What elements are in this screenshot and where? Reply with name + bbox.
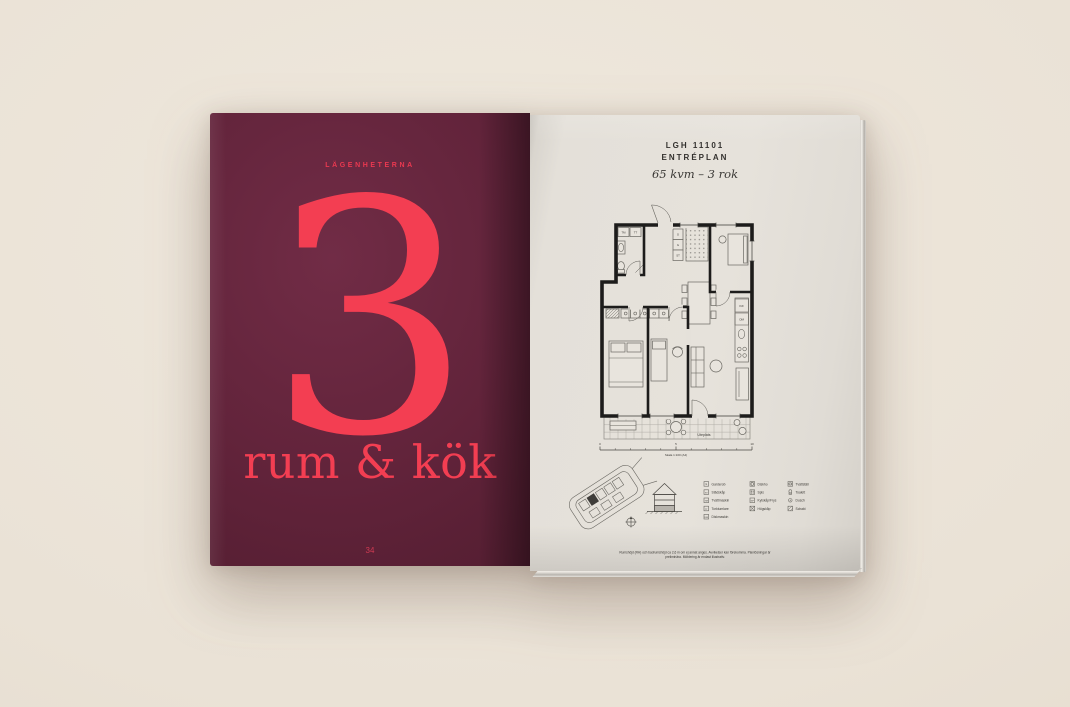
apartment-size: 65 kvm – 3 rok <box>530 167 860 181</box>
legend-item-label: Spis <box>758 491 765 495</box>
legend-toalett-icon <box>789 490 792 495</box>
legend-dusch-icon <box>789 499 793 503</box>
apartment-id: LGH 11101 <box>530 141 860 150</box>
room-count-subtitle: rum & kök <box>210 435 530 489</box>
legend-col2: Diskho Spis K/F Kylskåp/Frys Högskåp <box>750 482 777 511</box>
floor-plan: Uteplats TM TT <box>602 205 755 439</box>
legend-item-label: Kylskåp/Frys <box>758 499 777 503</box>
disclaimer-line2: preliminära. Möblering är endast illustr… <box>665 555 725 559</box>
legend-item-label: Städskåp <box>712 491 726 495</box>
cleaning-closet-label: ST <box>676 254 680 258</box>
svg-text:G: G <box>705 483 707 486</box>
left-page-number: 34 <box>210 546 530 555</box>
disclaimer: Rumshöjd (RH) och badrumshöjd ca 2,6 m o… <box>619 551 771 560</box>
disclaimer-line1: Rumshöjd (RH) och badrumshöjd ca 2,6 m o… <box>619 551 771 555</box>
section-kicker: LÄGENHETERNA <box>210 162 530 169</box>
scale-bar: 0 5 10 Skala 1:100 (A4) <box>599 442 754 457</box>
apartment-header: LGH 11101 ENTRÉPLAN 65 kvm – 3 rok <box>530 141 860 181</box>
svg-text:TM: TM <box>705 501 708 503</box>
building-section-icon <box>646 484 683 515</box>
legend-item-label: Högskåp <box>758 507 771 511</box>
left-page: LÄGENHETERNA 3 rum & kök 34 <box>210 113 530 566</box>
svg-text:DM: DM <box>705 517 709 519</box>
legend-col3: Tvättställ Toalett Dusch Schakt <box>788 482 809 511</box>
legend-item-label: Garderob <box>712 482 726 486</box>
legend-item-label: Toalett <box>796 491 806 495</box>
apartment-floor: ENTRÉPLAN <box>530 153 860 162</box>
terrace-label: Uteplats <box>697 433 710 437</box>
washing-machine-label: TM <box>621 230 626 234</box>
legend-item-label: Diskmaskin <box>712 515 729 519</box>
kitchen-appliances: K/F DM <box>735 298 749 362</box>
legend-item-label: Schakt <box>796 507 806 511</box>
north-arrow-icon <box>626 517 637 528</box>
site-plan <box>566 454 682 532</box>
legend-spis-icon <box>750 490 755 495</box>
bedroom-second <box>651 339 683 381</box>
legend-item-label: Torktumlare <box>712 507 729 511</box>
dryer-label: TT <box>634 230 638 234</box>
plan-legend: G Garderob ST Städskåp TM Tvättmaskin TT… <box>704 482 809 519</box>
open-book: LÄGENHETERNA 3 rum & kök 34 LGH 11101 EN… <box>210 112 860 572</box>
room-count-number: 3 <box>210 159 530 481</box>
dishwasher-label: DM <box>739 318 744 322</box>
wardrobe1-label: G <box>677 233 679 237</box>
fridge-freezer-label: K/F <box>739 304 744 308</box>
legend-col1: G Garderob ST Städskåp TM Tvättmaskin TT… <box>704 482 729 519</box>
bathroom-fixtures: TM TT <box>617 228 643 275</box>
legend-item-label: Dusch <box>796 499 806 503</box>
bedroom-master <box>609 341 643 387</box>
terrace: Uteplats <box>604 416 750 439</box>
scale-mid: 5 <box>675 442 677 446</box>
scale-caption: Skala 1:100 (A4) <box>665 453 687 457</box>
floor-plan-figure: Uteplats TM TT <box>530 189 860 564</box>
wardrobe2-label: G <box>677 243 679 247</box>
bedroom-wardrobes <box>606 309 669 318</box>
brochure-mockup: LÄGENHETERNA 3 rum & kök 34 LGH 11101 EN… <box>0 0 1070 707</box>
scale-start: 0 <box>599 442 601 446</box>
scale-end: 10 <box>750 442 754 446</box>
legend-item-label: Diskho <box>758 482 768 486</box>
right-page: LGH 11101 ENTRÉPLAN 65 kvm – 3 rok <box>530 115 860 571</box>
legend-item-label: Tvättställ <box>796 482 809 486</box>
hall-closets: G G ST <box>673 227 708 261</box>
bedroom-top <box>719 234 748 265</box>
legend-item-label: Tvättmaskin <box>712 499 730 503</box>
legend-schakt-icon <box>788 506 793 511</box>
